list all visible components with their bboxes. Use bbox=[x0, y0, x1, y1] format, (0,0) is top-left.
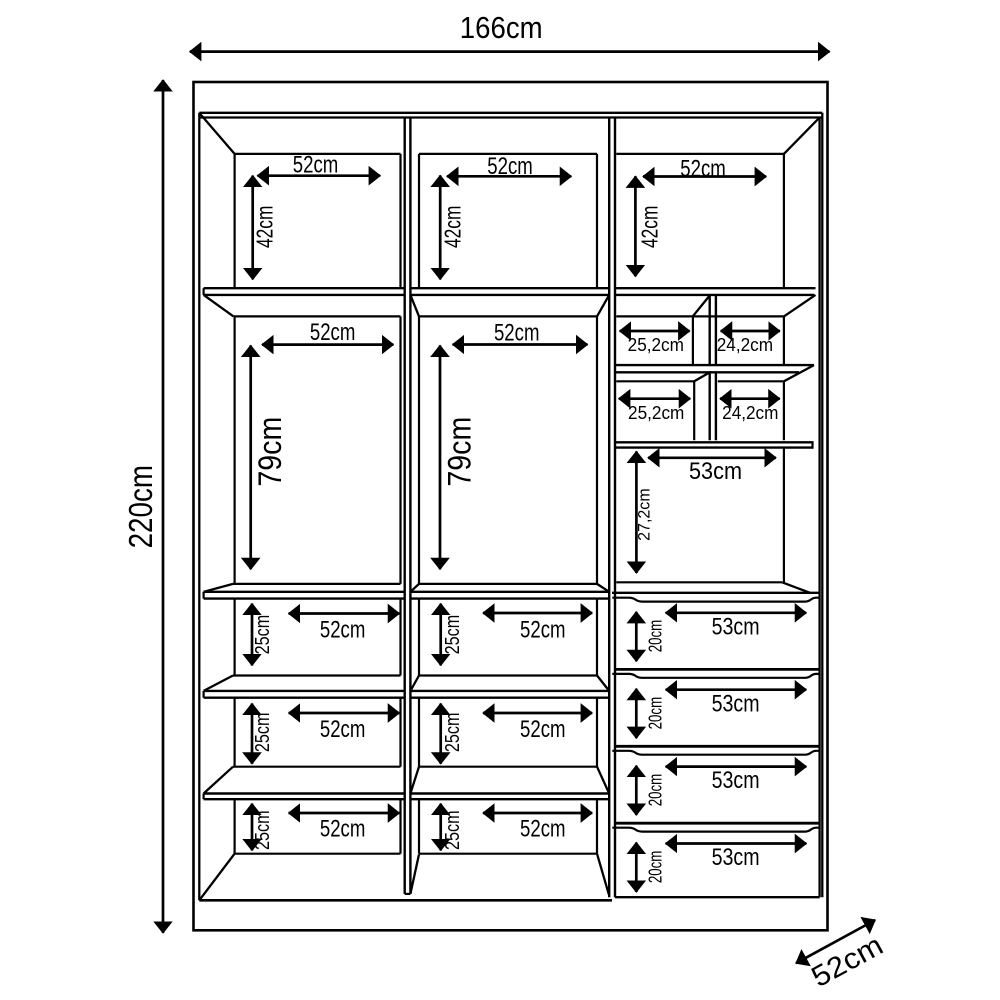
svg-text:25,2cm: 25,2cm bbox=[628, 403, 684, 423]
svg-text:42cm: 42cm bbox=[439, 206, 465, 248]
svg-text:53cm: 53cm bbox=[712, 690, 760, 717]
svg-text:52cm: 52cm bbox=[494, 320, 540, 347]
svg-text:166cm: 166cm bbox=[460, 10, 543, 45]
svg-text:20cm: 20cm bbox=[644, 774, 665, 807]
svg-text:20cm: 20cm bbox=[644, 620, 665, 653]
svg-text:25cm: 25cm bbox=[252, 615, 274, 655]
svg-text:25cm: 25cm bbox=[442, 810, 464, 850]
svg-text:52cm: 52cm bbox=[520, 616, 566, 643]
svg-text:52cm: 52cm bbox=[293, 151, 339, 178]
svg-text:42cm: 42cm bbox=[251, 206, 277, 248]
svg-text:42cm: 42cm bbox=[636, 206, 662, 248]
svg-text:79cm: 79cm bbox=[252, 417, 288, 487]
svg-text:25cm: 25cm bbox=[442, 615, 464, 655]
svg-text:52cm: 52cm bbox=[487, 153, 533, 180]
svg-text:52cm: 52cm bbox=[520, 716, 566, 743]
svg-text:52cm: 52cm bbox=[320, 616, 366, 643]
svg-text:25,2cm: 25,2cm bbox=[628, 335, 684, 355]
svg-text:53cm: 53cm bbox=[712, 613, 760, 640]
svg-text:25cm: 25cm bbox=[252, 713, 274, 753]
svg-text:79cm: 79cm bbox=[442, 417, 478, 487]
svg-text:220cm: 220cm bbox=[122, 465, 159, 548]
svg-text:53cm: 53cm bbox=[689, 458, 742, 485]
svg-text:52cm: 52cm bbox=[520, 816, 566, 843]
svg-text:53cm: 53cm bbox=[712, 844, 760, 871]
svg-text:52cm: 52cm bbox=[320, 716, 366, 743]
svg-text:20cm: 20cm bbox=[644, 851, 665, 884]
svg-text:25cm: 25cm bbox=[442, 713, 464, 753]
svg-text:24,2cm: 24,2cm bbox=[722, 403, 778, 423]
svg-text:24,2cm: 24,2cm bbox=[717, 335, 773, 355]
svg-text:52cm: 52cm bbox=[320, 816, 366, 843]
svg-text:20cm: 20cm bbox=[644, 697, 665, 730]
svg-text:52cm: 52cm bbox=[310, 319, 356, 346]
svg-text:27,2cm: 27,2cm bbox=[635, 488, 654, 541]
svg-text:53cm: 53cm bbox=[712, 767, 760, 794]
svg-text:25cm: 25cm bbox=[252, 810, 274, 850]
svg-text:52cm: 52cm bbox=[680, 155, 726, 182]
